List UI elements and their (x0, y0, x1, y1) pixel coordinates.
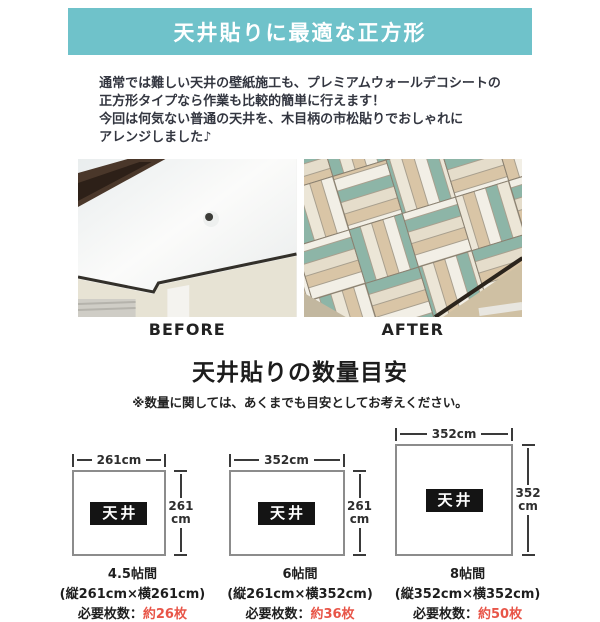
height-unit: cm (350, 513, 370, 526)
room-dimensions: (縦261cm×横261cm) (60, 583, 206, 602)
measure-line (146, 459, 161, 461)
measure-line (527, 515, 529, 552)
banner-title: 天井貼りに最適な正方形 (174, 17, 427, 47)
required-label: 必要枚数： (78, 607, 143, 622)
measure-line (180, 474, 182, 498)
ceiling-chip: 天井 (258, 502, 315, 525)
measure-line (359, 528, 361, 552)
intro-line: 今回は何気ない普通の天井を、木目柄の市松貼りでおしゃれに (99, 111, 501, 129)
height-measure-label: 352 cm (516, 487, 541, 513)
required-value: 約50枚 (478, 607, 522, 622)
before-figure: BEFORE (78, 159, 297, 339)
room-size-name: 4.5帖間 (108, 563, 157, 582)
required-sheets: 必要枚数：約36枚 (245, 603, 354, 622)
diagram-4-5jo: 261cm 天井 261 cm 4.5帖間 (縦261cm×横261cm) (60, 453, 206, 622)
before-after-comparison: BEFORE (0, 159, 600, 339)
intro-line: 通常では難しい天井の壁紙施工も、プレミアムウォールデコシートの (99, 75, 501, 93)
intro-text: 通常では難しい天井の壁紙施工も、プレミアムウォールデコシートの 正方形タイプなら… (99, 75, 501, 147)
height-unit: cm (518, 500, 538, 513)
width-measure: 261cm (72, 453, 166, 467)
room-dimensions: (縦352cm×横352cm) (395, 583, 541, 602)
product-infographic: 天井貼りに最適な正方形 通常では難しい天井の壁紙施工も、プレミアムウォールデコシ… (0, 0, 600, 600)
measure-tick (511, 428, 513, 441)
after-label: AFTER (304, 320, 523, 339)
measure-tick (164, 454, 166, 467)
required-sheets: 必要枚数：約50枚 (413, 603, 522, 622)
required-value: 約26枚 (143, 607, 187, 622)
measure-tick (72, 454, 74, 467)
width-measure: 352cm (395, 427, 513, 441)
after-figure: AFTER (304, 159, 523, 339)
measure-tick (229, 454, 231, 467)
intro-line: 正方形タイプなら作業も比較的簡単に行えます！ (99, 93, 501, 111)
height-measure: 352 cm (516, 444, 540, 556)
quantity-note: ※数量に関しては、あくまでも目安としてお考えください。 (0, 392, 600, 411)
ceiling-chip: 天井 (90, 502, 147, 525)
measure-tick (353, 554, 366, 556)
measure-line (527, 448, 529, 485)
measure-tick (522, 444, 535, 446)
diagram-8jo: 352cm 天井 352 cm 8帖間 (縦352cm×横352cm) (395, 427, 541, 622)
measure-tick (343, 454, 345, 467)
height-measure: 261 cm (169, 470, 193, 556)
measure-tick (174, 554, 187, 556)
intro-line: アレンジしました♪ (99, 129, 501, 147)
width-measure-label: 352cm (262, 453, 311, 467)
measure-line (481, 433, 508, 435)
height-measure: 261 cm (348, 470, 372, 556)
room-size-name: 8帖間 (450, 563, 485, 582)
required-sheets: 必要枚数：約26枚 (78, 603, 187, 622)
measure-line (400, 433, 427, 435)
height-unit: cm (171, 513, 191, 526)
before-photo (78, 159, 297, 317)
required-label: 必要枚数： (413, 607, 478, 622)
ceiling-square: 天井 (395, 444, 513, 556)
quantity-diagrams: 261cm 天井 261 cm 4.5帖間 (縦261cm×横261cm) (0, 427, 600, 622)
width-measure-label: 352cm (430, 427, 479, 441)
height-measure-label: 261 cm (347, 500, 372, 526)
room-size-name: 6帖間 (282, 563, 317, 582)
measure-tick (353, 470, 366, 472)
after-photo (304, 159, 523, 317)
measure-line (234, 459, 260, 461)
ceiling-square: 天井 (229, 470, 345, 556)
quantity-section-title: 天井貼りの数量目安 (0, 353, 600, 387)
measure-tick (522, 554, 535, 556)
diagram-6jo: 352cm 天井 261 cm 6帖間 (縦261cm×横352cm) (227, 453, 373, 622)
measure-tick (174, 470, 187, 472)
width-measure-label: 261cm (95, 453, 144, 467)
measure-line (314, 459, 340, 461)
measure-tick (395, 428, 397, 441)
room-dimensions: (縦261cm×横352cm) (227, 583, 373, 602)
ceiling-chip: 天井 (426, 489, 483, 512)
before-label: BEFORE (78, 320, 297, 339)
width-measure: 352cm (229, 453, 345, 467)
measure-line (77, 459, 92, 461)
measure-line (359, 474, 361, 498)
measure-line (180, 528, 182, 552)
required-value: 約36枚 (310, 607, 354, 622)
header-banner: 天井貼りに最適な正方形 (68, 8, 532, 55)
required-label: 必要枚数： (245, 607, 310, 622)
ceiling-square: 天井 (72, 470, 166, 556)
height-measure-label: 261 cm (168, 500, 193, 526)
